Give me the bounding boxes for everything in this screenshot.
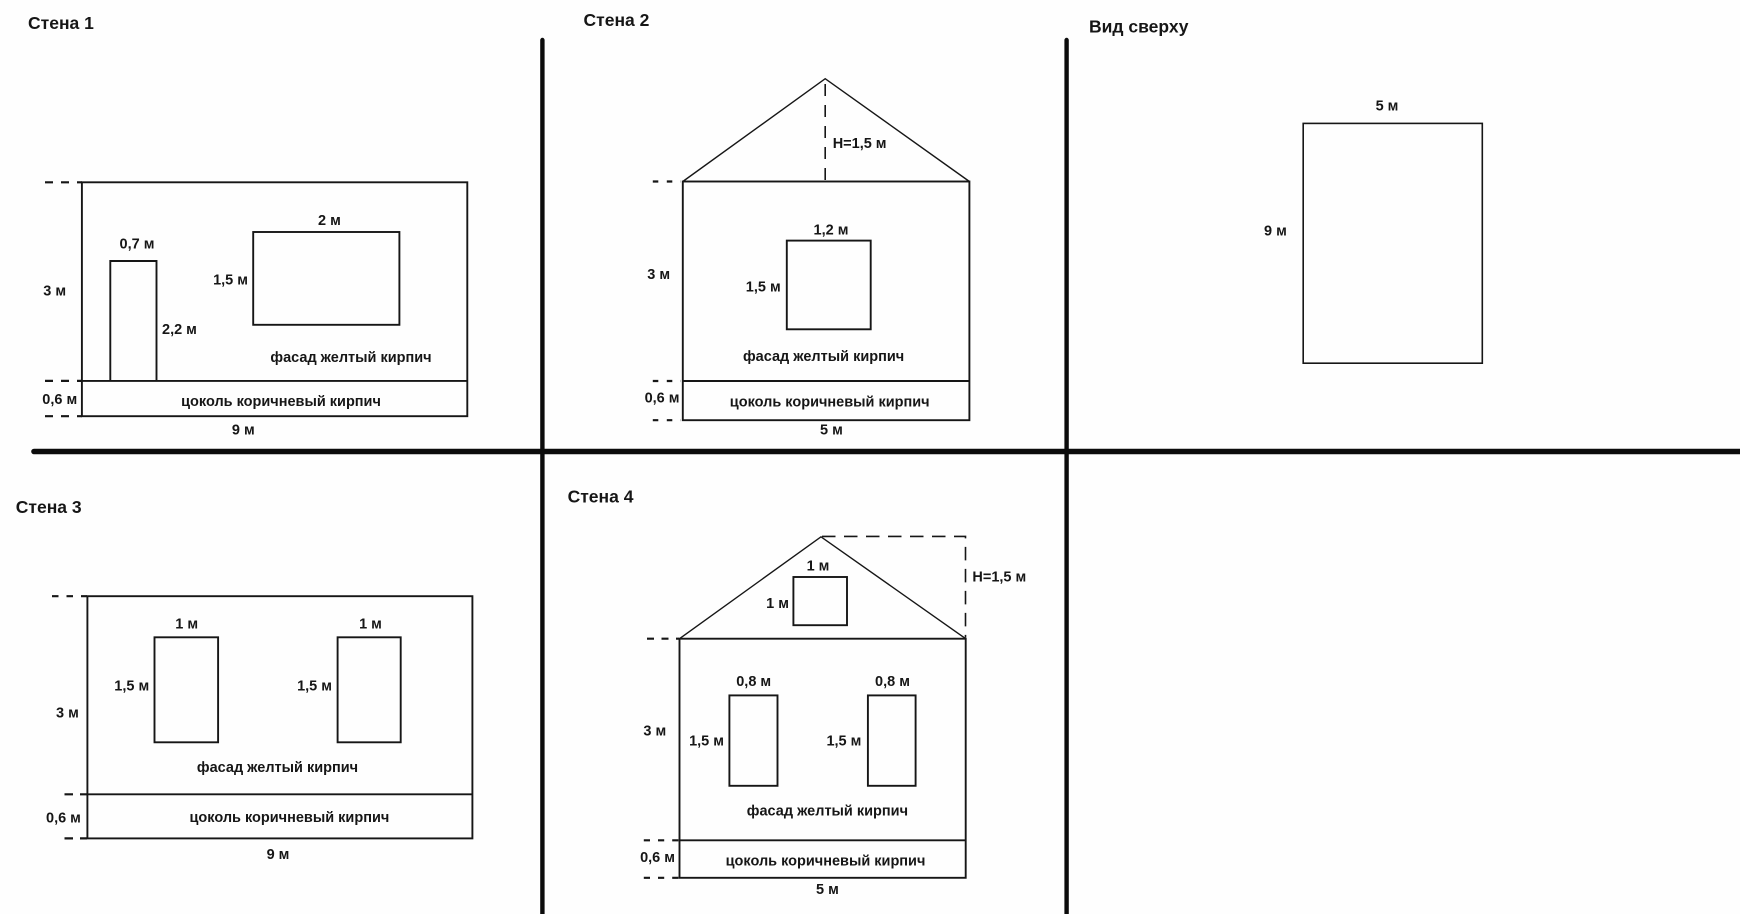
svg-text:Стена 4: Стена 4 <box>568 487 634 507</box>
svg-text:1,5 м: 1,5 м <box>826 734 861 750</box>
svg-text:фасад желтый кирпич: фасад желтый кирпич <box>747 804 908 820</box>
svg-text:Вид сверху: Вид сверху <box>1089 17 1189 37</box>
svg-text:1,5 м: 1,5 м <box>213 273 248 289</box>
svg-text:0,8 м: 0,8 м <box>736 674 771 690</box>
svg-text:цоколь коричневый кирпич: цоколь коричневый кирпич <box>730 395 930 411</box>
svg-text:0,7 м: 0,7 м <box>120 236 155 252</box>
svg-text:Н=1,5 м: Н=1,5 м <box>972 569 1026 585</box>
svg-text:0,8 м: 0,8 м <box>875 674 910 690</box>
svg-text:1 м: 1 м <box>359 616 382 632</box>
svg-text:0,6 м: 0,6 м <box>46 811 81 827</box>
svg-text:1,2 м: 1,2 м <box>814 223 849 239</box>
svg-text:9 м: 9 м <box>1264 224 1287 240</box>
svg-text:1 м: 1 м <box>807 559 830 575</box>
svg-text:1,5 м: 1,5 м <box>746 280 781 296</box>
svg-text:3 м: 3 м <box>647 267 670 283</box>
svg-text:1,5 м: 1,5 м <box>689 734 724 750</box>
svg-text:0,6 м: 0,6 м <box>645 391 680 407</box>
svg-text:2,2 м: 2,2 м <box>162 322 197 338</box>
svg-text:цоколь коричневый кирпич: цоколь коричневый кирпич <box>726 853 926 869</box>
svg-text:2 м: 2 м <box>318 213 341 229</box>
svg-text:цоколь коричневый кирпич: цоколь коричневый кирпич <box>190 810 390 826</box>
svg-text:5 м: 5 м <box>1376 98 1399 114</box>
svg-text:5 м: 5 м <box>816 882 839 898</box>
svg-text:фасад желтый кирпич: фасад желтый кирпич <box>197 760 358 776</box>
svg-text:цоколь коричневый кирпич: цоколь коричневый кирпич <box>181 394 381 410</box>
svg-text:Стена 1: Стена 1 <box>28 13 94 33</box>
svg-text:1 м: 1 м <box>175 616 198 632</box>
svg-text:Н=1,5 м: Н=1,5 м <box>833 136 887 152</box>
svg-text:3 м: 3 м <box>43 283 66 299</box>
svg-text:0,6 м: 0,6 м <box>42 392 77 408</box>
svg-text:фасад желтый кирпич: фасад желтый кирпич <box>743 349 904 365</box>
svg-text:3 м: 3 м <box>56 705 79 721</box>
svg-text:Стена 2: Стена 2 <box>584 10 650 30</box>
svg-text:9 м: 9 м <box>232 422 255 438</box>
svg-text:0,6 м: 0,6 м <box>640 850 675 866</box>
svg-text:1,5 м: 1,5 м <box>114 678 149 694</box>
svg-text:1 м: 1 м <box>766 596 789 612</box>
svg-text:фасад желтый кирпич: фасад желтый кирпич <box>270 350 431 366</box>
svg-text:3 м: 3 м <box>643 724 666 740</box>
svg-text:1,5 м: 1,5 м <box>297 678 332 694</box>
svg-text:5 м: 5 м <box>820 423 843 439</box>
svg-text:9 м: 9 м <box>267 847 290 863</box>
svg-text:Стена 3: Стена 3 <box>16 497 82 517</box>
